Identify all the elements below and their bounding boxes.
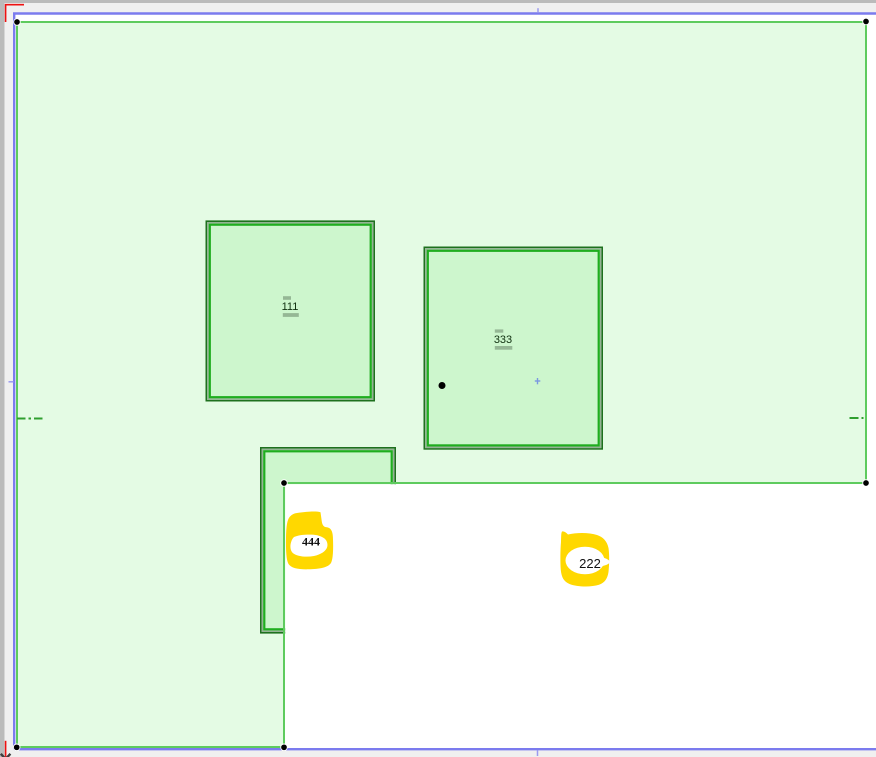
- svg-text:444: 444: [302, 535, 320, 549]
- svg-text:333: 333: [494, 334, 512, 346]
- svg-text:111: 111: [282, 301, 299, 313]
- svg-text:222: 222: [579, 556, 601, 571]
